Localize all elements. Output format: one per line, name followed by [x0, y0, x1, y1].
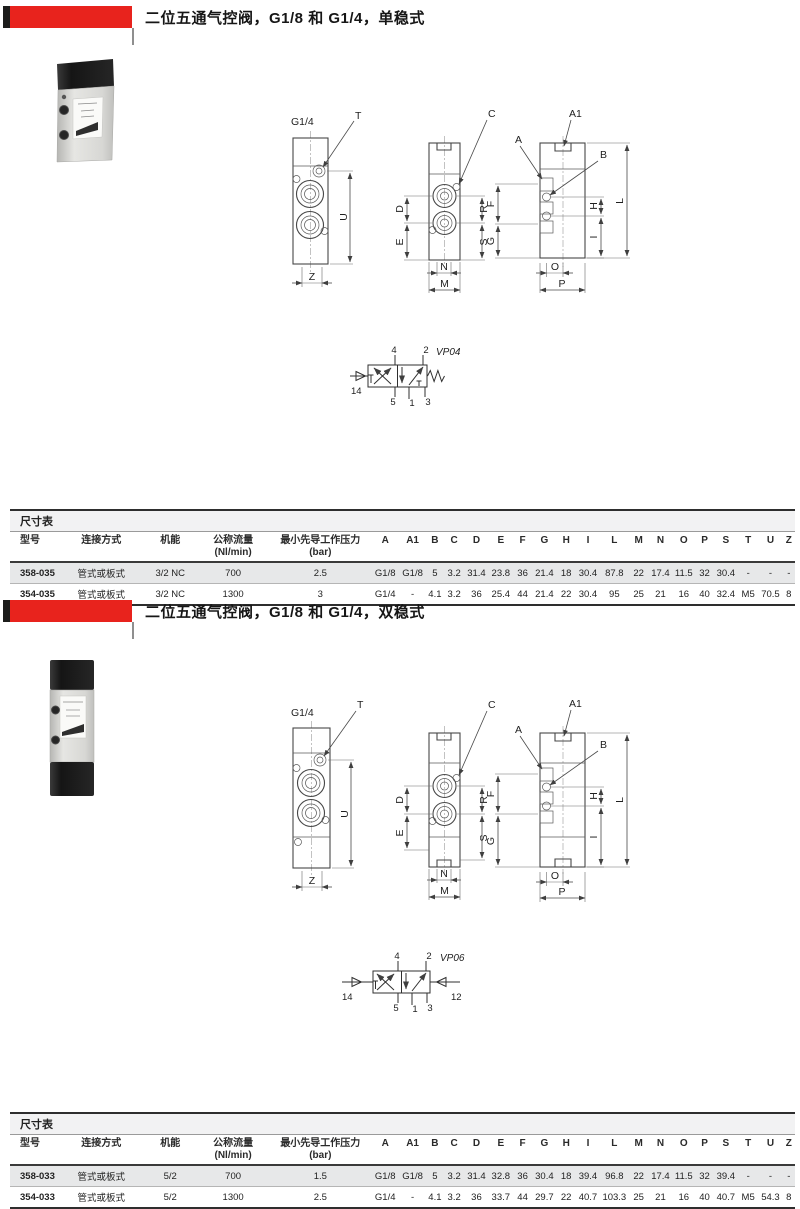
dim-label-F: F [485, 201, 497, 207]
dim-label-B: B [600, 739, 607, 751]
spring-icon [428, 371, 445, 382]
section-title: 二位五通气控阀，G1/8 和 G1/4，单稳式 [145, 7, 425, 28]
port-hole [52, 706, 60, 714]
dim-label-A: A [515, 724, 522, 736]
dim-label-Z: Z [309, 875, 316, 887]
marker-tail-line [132, 28, 134, 45]
dim-label-D: D [394, 205, 406, 213]
section-bistable: 二位五通气控阀，G1/8 和 G1/4，双稳式 G1/4 T [0, 594, 800, 1192]
dim-label-A: A [515, 134, 522, 146]
section-red-marker [3, 6, 132, 28]
col-function: 机能 [144, 532, 197, 562]
valve-symbol-5-2-double-pilot [342, 961, 460, 1005]
dim-col-header: U [758, 532, 782, 562]
dim-col-header: T [738, 1135, 758, 1165]
dim-cell: - [783, 1165, 795, 1187]
dim-cell: 11.5 [672, 562, 695, 584]
dim-col-header: G [532, 1135, 556, 1165]
port-3-label: 3 [425, 397, 430, 407]
dim-label-I: I [588, 236, 600, 239]
section-red-marker [3, 600, 132, 622]
dim-cell: 17.4 [649, 562, 672, 584]
dim-col-header: E [489, 532, 513, 562]
function-cell: 5/2 [144, 1165, 197, 1187]
dim-col-header: D [464, 532, 488, 562]
dim-col-header: M [629, 532, 649, 562]
dim-cell: 22 [557, 1187, 576, 1209]
dim-cell: 5 [426, 1165, 444, 1187]
dim-col-header: F [513, 1135, 532, 1165]
dim-label-Z: Z [309, 271, 316, 283]
dim-col-header: U [758, 1135, 782, 1165]
dim-label-T: T [357, 699, 364, 711]
connection-cell: 管式或板式 [59, 1165, 144, 1187]
dim-cell: 29.7 [532, 1187, 556, 1209]
dim-col-header: H [557, 1135, 576, 1165]
dim-label-P: P [558, 278, 565, 290]
catalog-page: { "colors":{"accent_red":"#e8231d","bar_… [0, 0, 800, 1192]
dim-cell: 40 [695, 1187, 713, 1209]
dim-col-header: H [557, 532, 576, 562]
port-size-label: G1/4 [291, 116, 314, 128]
flow-cell: 1300 [197, 1187, 270, 1209]
dim-cell: G1/8 [371, 562, 399, 584]
dim-label-G: G [485, 237, 497, 245]
pilot-12-label: 12 [451, 992, 462, 1003]
dim-cell: 36 [513, 562, 532, 584]
dim-col-header: O [672, 1135, 695, 1165]
dim-label-H: H [588, 792, 600, 800]
dim-cell: - [758, 1165, 782, 1187]
dim-label-F: F [485, 791, 497, 797]
dim-cell: - [783, 562, 795, 584]
pneumatic-symbol-monostable: 4 2 5 1 3 14 VP04 [335, 342, 465, 407]
dim-col-header: P [695, 1135, 713, 1165]
dim-col-header: E [489, 1135, 513, 1165]
dim-cell: 23.8 [489, 562, 513, 584]
port-1-label: 1 [409, 398, 414, 407]
pilot-14-label: 14 [351, 386, 362, 397]
port-2-label: 2 [423, 345, 428, 356]
dim-cell: 18 [557, 562, 576, 584]
dim-cell: 36 [513, 1165, 532, 1187]
flow-cell: 700 [197, 562, 270, 584]
dim-col-header: L [600, 532, 628, 562]
dim-cell: 36 [464, 1187, 488, 1209]
screw-hole [62, 95, 66, 99]
table-caption: 尺寸表 [10, 509, 795, 532]
col-pressure-label: 最小先导工作压力 [270, 1138, 371, 1150]
col-flow-unit: (Nl/min) [197, 547, 270, 559]
dim-cell: 44 [513, 1187, 532, 1209]
dim-label-O: O [551, 261, 559, 273]
table-row: 358-035 管式或板式 3/2 NC 700 2.5 G1/8 G1/8 5… [10, 562, 795, 584]
dim-cell: 87.8 [600, 562, 628, 584]
port-4-label: 4 [391, 345, 396, 356]
dim-cell: 8 [783, 1187, 795, 1209]
dim-cell: 3.2 [444, 1165, 464, 1187]
dim-label-N: N [440, 261, 448, 273]
port-5-label: 5 [393, 1003, 398, 1013]
dim-col-header: B [426, 1135, 444, 1165]
dim-label-P: P [558, 886, 565, 898]
dim-cell: 18 [557, 1165, 576, 1187]
dim-cell: 22 [629, 562, 649, 584]
dim-cell: - [738, 1165, 758, 1187]
dim-cell: 3.2 [444, 1187, 464, 1209]
dim-cell: 32 [695, 1165, 713, 1187]
dim-cell: 32.8 [489, 1165, 513, 1187]
dim-cell: 16 [672, 1187, 695, 1209]
dim-col-header: A1 [399, 1135, 425, 1165]
port-hole [60, 131, 69, 140]
section-marker-black-strip [3, 600, 10, 622]
dim-cell: 11.5 [672, 1165, 695, 1187]
symbol-code: VP04 [436, 347, 461, 358]
dim-label-M: M [440, 278, 449, 290]
pressure-cell: 2.5 [270, 562, 371, 584]
dim-label-U: U [338, 213, 350, 221]
col-pressure-unit: (bar) [270, 1150, 371, 1162]
pneumatic-symbol-bistable: 4 2 5 1 3 14 12 VP06 [330, 948, 490, 1013]
dim-cell: 39.4 [714, 1165, 738, 1187]
section-view: A A1 B F G H I L [485, 698, 630, 902]
dim-col-header: F [513, 532, 532, 562]
port-3-label: 3 [427, 1003, 432, 1013]
model-cell: 354-033 [10, 1187, 59, 1209]
dim-cell: 39.4 [576, 1165, 600, 1187]
dim-col-header: N [649, 532, 672, 562]
header-row: 型号 连接方式 机能 公称流量(Nl/min) 最小先导工作压力(bar) A … [10, 1135, 795, 1165]
dim-cell: G1/8 [399, 562, 425, 584]
dim-col-header: T [738, 532, 758, 562]
col-pressure: 最小先导工作压力(bar) [270, 1135, 371, 1165]
dim-col-header: A1 [399, 532, 425, 562]
dim-cell: 3.2 [444, 562, 464, 584]
dimension-table-bistable: 尺寸表 型号 连接方式 机能 公称流量(Nl/min) 最小先导工作压力(bar… [10, 1112, 795, 1209]
connection-cell: 管式或板式 [59, 562, 144, 584]
valve-pilot-cap [57, 59, 114, 90]
port-4-label: 4 [394, 951, 399, 962]
dim-col-header: Z [783, 1135, 795, 1165]
dim-cell: - [399, 1187, 425, 1209]
dim-cell: 17.4 [649, 1165, 672, 1187]
front-view: G1/4 T U Z [291, 110, 362, 287]
section-monostable: 二位五通气控阀，G1/8 和 G1/4，单稳式 G1/4 T [0, 0, 800, 594]
model-cell: 358-033 [10, 1165, 59, 1187]
section-title: 二位五通气控阀，G1/8 和 G1/4，双稳式 [145, 601, 425, 622]
symbol-code: VP06 [440, 953, 465, 964]
flow-cell: 700 [197, 1165, 270, 1187]
dim-col-header: B [426, 532, 444, 562]
table-row: 358-033 管式或板式 5/2 700 1.5 G1/8 G1/8 5 3.… [10, 1165, 795, 1187]
dim-col-header: D [464, 1135, 488, 1165]
table-row: 354-033 管式或板式 5/2 1300 2.5 G1/4 - 4.1 3.… [10, 1187, 795, 1209]
port-1-label: 1 [412, 1004, 417, 1013]
pilot-14-label: 14 [342, 992, 353, 1003]
header-row: 型号 连接方式 机能 公称流量(Nl/min) 最小先导工作压力(bar) A … [10, 532, 795, 562]
side-view: C D E R S N M [394, 699, 496, 900]
dim-cell: 40.7 [576, 1187, 600, 1209]
dim-col-header: S [714, 532, 738, 562]
dim-col-header: O [672, 532, 695, 562]
dim-label-O: O [551, 870, 559, 882]
dim-cell: 30.4 [576, 562, 600, 584]
dim-label-C: C [488, 108, 496, 120]
col-pressure-unit: (bar) [270, 547, 371, 559]
col-model: 型号 [10, 532, 59, 562]
dim-cell: 96.8 [600, 1165, 628, 1187]
function-cell: 3/2 NC [144, 562, 197, 584]
valve-pilot-cap-top [50, 660, 94, 690]
col-model: 型号 [10, 1135, 59, 1165]
dim-col-header: A [371, 532, 399, 562]
dimension-table-monostable: 尺寸表 型号 连接方式 机能 公称流量(Nl/min) 最小先导工作压力(bar… [10, 509, 795, 606]
dim-cell: - [758, 562, 782, 584]
dim-cell: 4.1 [426, 1187, 444, 1209]
dim-cell: 31.4 [464, 1165, 488, 1187]
function-cell: 5/2 [144, 1187, 197, 1209]
dimension-drawing-bistable: G1/4 T U Z C [270, 690, 630, 915]
dim-label-C: C [488, 699, 496, 711]
dim-col-header: Z [783, 532, 795, 562]
dim-col-header: P [695, 532, 713, 562]
dim-label-I: I [588, 836, 600, 839]
col-connection: 连接方式 [59, 532, 144, 562]
dim-cell: 31.4 [464, 562, 488, 584]
dim-cell: 21 [649, 1187, 672, 1209]
product-photo-bistable [45, 658, 100, 798]
dim-col-header: L [600, 1135, 628, 1165]
dim-col-header: A [371, 1135, 399, 1165]
dimension-drawing-monostable: G1/4 T U Z C [270, 95, 630, 315]
dim-cell: 33.7 [489, 1187, 513, 1209]
dim-cell: 32 [695, 562, 713, 584]
dim-label-B: B [600, 149, 607, 161]
dim-cell: 21.4 [532, 562, 556, 584]
dim-col-header: C [444, 1135, 464, 1165]
dim-cell: G1/4 [371, 1187, 399, 1209]
model-cell: 358-035 [10, 562, 59, 584]
col-flow-label: 公称流量 [197, 1138, 270, 1150]
dim-col-header: C [444, 532, 464, 562]
port-hole [52, 736, 60, 744]
dim-label-T: T [355, 110, 362, 122]
dim-cell: 22 [629, 1165, 649, 1187]
dim-cell: 54.3 [758, 1187, 782, 1209]
dim-cell: 30.4 [532, 1165, 556, 1187]
dim-label-A1: A1 [569, 108, 582, 120]
marker-tail-line [132, 622, 134, 639]
col-flow-label: 公称流量 [197, 535, 270, 547]
valve-symbol-5-2-spring [350, 355, 445, 399]
pressure-cell: 1.5 [270, 1165, 371, 1187]
dim-label-A1: A1 [569, 698, 582, 710]
specs-table: 型号 连接方式 机能 公称流量(Nl/min) 最小先导工作压力(bar) A … [10, 1135, 795, 1209]
pressure-cell: 2.5 [270, 1187, 371, 1209]
dim-label-H: H [588, 202, 600, 210]
dim-label-M: M [440, 885, 449, 897]
col-function: 机能 [144, 1135, 197, 1165]
col-connection: 连接方式 [59, 1135, 144, 1165]
port-hole [60, 106, 69, 115]
dim-label-L: L [614, 797, 626, 803]
dim-cell: G1/8 [399, 1165, 425, 1187]
dim-label-L: L [614, 198, 626, 204]
dim-col-header: S [714, 1135, 738, 1165]
product-photo-monostable [45, 55, 130, 165]
dim-cell: M5 [738, 1187, 758, 1209]
dim-col-header: N [649, 1135, 672, 1165]
dim-col-header: I [576, 532, 600, 562]
dim-label-U: U [339, 810, 351, 818]
dim-col-header: G [532, 532, 556, 562]
dim-label-G: G [485, 837, 497, 845]
dim-label-E: E [394, 829, 406, 836]
dim-cell: 40.7 [714, 1187, 738, 1209]
dim-cell: 30.4 [714, 562, 738, 584]
port-5-label: 5 [390, 397, 395, 407]
dim-cell: 5 [426, 562, 444, 584]
port-2-label: 2 [426, 951, 431, 962]
col-pressure-label: 最小先导工作压力 [270, 535, 371, 547]
dim-label-N: N [440, 868, 448, 880]
dim-label-E: E [394, 238, 406, 245]
col-flow: 公称流量(Nl/min) [197, 532, 270, 562]
section-view: A A1 B F G H I L [485, 108, 630, 293]
col-flow-unit: (Nl/min) [197, 1150, 270, 1162]
connection-cell: 管式或板式 [59, 1187, 144, 1209]
col-pressure: 最小先导工作压力(bar) [270, 532, 371, 562]
valve-pilot-cap-bottom [50, 762, 94, 796]
dim-col-header: I [576, 1135, 600, 1165]
section-marker-black-strip [3, 6, 10, 28]
side-view: C D E R S N M [394, 108, 496, 293]
table-caption: 尺寸表 [10, 1112, 795, 1135]
dim-col-header: M [629, 1135, 649, 1165]
dim-cell: G1/8 [371, 1165, 399, 1187]
dim-label-D: D [394, 796, 406, 804]
dim-cell: - [738, 562, 758, 584]
col-flow: 公称流量(Nl/min) [197, 1135, 270, 1165]
dim-cell: 103.3 [600, 1187, 628, 1209]
dim-cell: 25 [629, 1187, 649, 1209]
front-view: G1/4 T U Z [291, 699, 364, 891]
port-size-label: G1/4 [291, 707, 314, 719]
